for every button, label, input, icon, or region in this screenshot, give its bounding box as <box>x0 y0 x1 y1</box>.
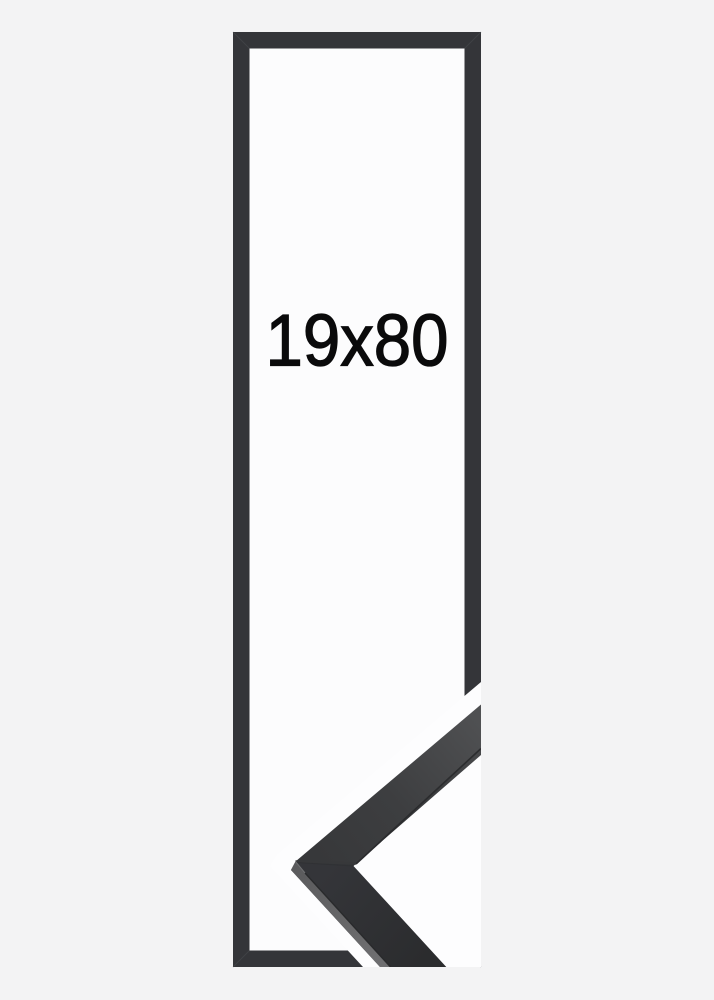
svg-text:19x80: 19x80 <box>266 300 449 381</box>
